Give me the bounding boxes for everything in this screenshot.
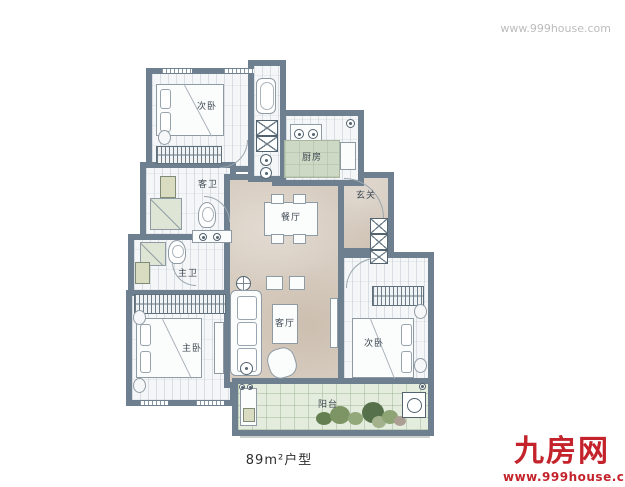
cabinet-icon: [289, 276, 305, 290]
sink-bowl-icon: [213, 233, 221, 241]
pillow-icon: [140, 324, 151, 346]
shower-icon: [150, 198, 182, 230]
pillow-icon: [160, 89, 171, 109]
pillow-icon: [160, 112, 171, 132]
window: [224, 68, 254, 74]
side-table-icon: [414, 358, 427, 373]
chair-icon: [271, 194, 284, 204]
washing-machine-icon: [402, 392, 426, 418]
washbasin-icon: [160, 176, 176, 198]
room-label-entry: 玄关: [356, 192, 376, 201]
dresser-icon: [214, 322, 224, 374]
site-logo-url: www.999house.com: [503, 470, 621, 484]
shaft-icon: [256, 136, 278, 152]
floor-plan: 次卧 厨房 客卫 主卫: [0, 0, 625, 487]
window: [196, 400, 224, 406]
cabinet-icon: [266, 276, 283, 290]
sink-bowl-icon: [308, 129, 318, 139]
pillow-icon: [140, 351, 151, 373]
floor-lamp-icon: [236, 276, 251, 291]
balcony-railing: [240, 436, 430, 438]
stool-icon: [158, 130, 171, 145]
wardrobe-icon: [134, 294, 226, 314]
washer-drum-icon: [407, 398, 422, 413]
planter-box-icon: [243, 408, 255, 422]
pillow-icon: [401, 324, 412, 346]
shaft-icon: [256, 120, 278, 136]
wardrobe-icon: [372, 286, 424, 306]
watermark-url-top: www.999house.com: [500, 22, 611, 35]
counter-icon: [340, 142, 356, 170]
room-label-dining: 餐厅: [281, 214, 301, 223]
faucet-icon: [239, 384, 245, 390]
room-label-living: 客厅: [275, 320, 295, 329]
site-logo: 九房网 www.999house.com: [503, 437, 621, 484]
plant-icon: [348, 412, 363, 425]
room-label-bedroom-top: 次卧: [197, 103, 217, 112]
bathtub-icon: [256, 78, 276, 114]
stove-burner-icon: [260, 167, 272, 179]
room-label-master-bedroom: 主卧: [182, 345, 202, 354]
stove-burner-icon: [260, 154, 272, 166]
pillow-icon: [401, 351, 412, 373]
room-label-master-bath: 主卫: [178, 270, 198, 279]
sink-bowl-icon: [294, 129, 304, 139]
side-table-icon: [414, 304, 427, 319]
chair-icon: [293, 194, 306, 204]
side-table-icon: [133, 378, 146, 393]
washbasin-icon: [135, 262, 150, 284]
wardrobe-icon: [156, 146, 222, 164]
cushion-icon: [237, 296, 257, 320]
room-label-guest-bath: 客卫: [198, 181, 218, 190]
site-logo-name: 九房网: [503, 437, 621, 467]
window: [140, 400, 168, 406]
room-label-bedroom-right: 次卧: [364, 340, 384, 349]
side-table-icon: [133, 310, 146, 325]
sink-bowl-icon: [199, 233, 207, 241]
tv-icon: [330, 298, 338, 348]
ottoman-icon: [240, 362, 253, 375]
plan-caption: 89m²户型: [246, 449, 312, 468]
page: 次卧 厨房 客卫 主卫: [0, 0, 625, 487]
drain-icon: [419, 383, 426, 390]
toilet-icon: [168, 240, 186, 264]
shaft-icon: [370, 218, 388, 234]
chair-icon: [293, 234, 306, 244]
window: [162, 68, 192, 74]
cushion-icon: [237, 322, 257, 346]
vanity-icon: [192, 230, 232, 243]
spot-light-icon: [346, 119, 355, 128]
faucet-icon: [247, 384, 253, 390]
shaft-icon: [370, 234, 388, 250]
chair-icon: [271, 234, 284, 244]
room-label-kitchen: 厨房: [302, 154, 322, 163]
room-label-balcony: 阳台: [318, 401, 338, 410]
